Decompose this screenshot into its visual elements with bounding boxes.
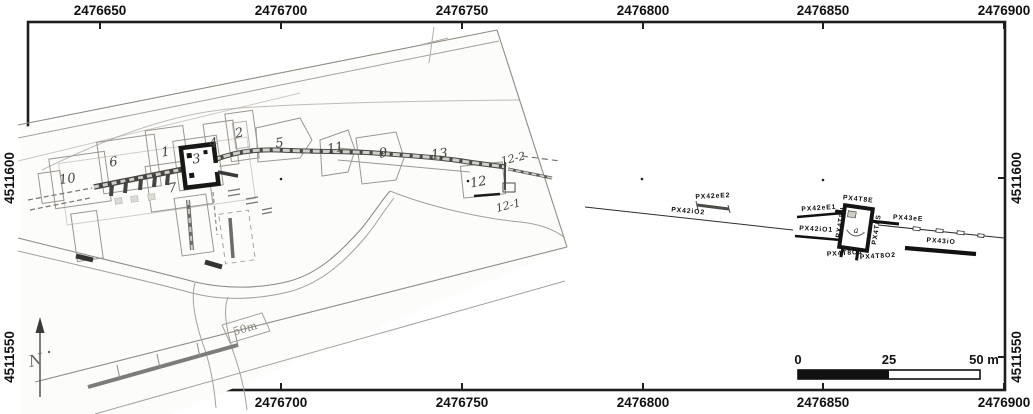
y-axis-left: 4511600 4511550 xyxy=(2,152,17,383)
trench-label-11: 11 xyxy=(326,140,345,158)
trench-label-13: 13 xyxy=(430,146,448,163)
scalebar-25: 25 xyxy=(882,352,896,367)
x-tick-label: 2476700 xyxy=(255,395,308,410)
scalebar-filled-half xyxy=(798,370,889,379)
survey-map: 2476650 2476700 2476750 2476800 2476850 … xyxy=(0,0,1033,414)
trench-label-10: 10 xyxy=(58,171,76,188)
y-tick-label: 4511600 xyxy=(1009,152,1024,204)
x-tick-label: 2476850 xyxy=(797,3,850,18)
y-tick-label: 4511600 xyxy=(2,152,17,204)
x-tick-label: 2476800 xyxy=(617,395,670,410)
structure-letter-a: a xyxy=(854,226,859,235)
y-axis-right: 4511600 4511550 xyxy=(1009,152,1024,383)
x-tick-label: 2476650 xyxy=(74,3,127,18)
y-tick-label: 4511550 xyxy=(1009,331,1024,383)
x-tick-label: 2476750 xyxy=(436,3,489,18)
map-page: 2476650 2476700 2476750 2476800 2476850 … xyxy=(0,0,1033,414)
x-tick-label: 2476800 xyxy=(617,3,670,18)
x-tick-label: 2476900 xyxy=(978,3,1031,18)
trench-label-12: 12 xyxy=(469,174,488,192)
x-tick-label: 2476700 xyxy=(255,3,308,18)
x-tick-label: 2476850 xyxy=(797,395,850,410)
x-axis-bottom: 2476650 2476700 2476750 2476800 2476850 … xyxy=(74,395,1031,410)
x-axis-top: 2476650 2476700 2476750 2476800 2476850 … xyxy=(74,3,1031,18)
scalebar-0: 0 xyxy=(794,352,801,367)
scalebar-50: 50 m xyxy=(969,352,999,367)
x-tick-label: 2476750 xyxy=(436,395,489,410)
y-tick-label: 4511550 xyxy=(2,331,17,383)
x-tick-label: 2476900 xyxy=(978,395,1031,410)
